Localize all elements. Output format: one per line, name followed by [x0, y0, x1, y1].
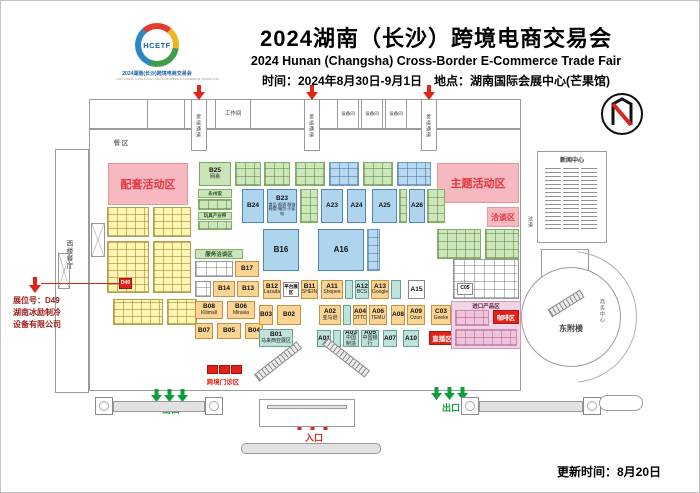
- platform-zone-label: 平台展区: [283, 282, 299, 297]
- booth-b01: B01马来西亚展区: [259, 329, 293, 347]
- update-time: 更新时间：8月20日: [557, 463, 661, 480]
- booth-a08: A08: [391, 305, 405, 325]
- floorplan-poster: HCETF 2024湖南(长沙)跨境电商交易会 2024 HUNAN (CHAN…: [0, 0, 700, 493]
- booth-b13: B13: [237, 281, 259, 297]
- yellow-booth-grid: [107, 207, 149, 237]
- booth-b24: B24: [242, 189, 264, 223]
- booth-c03: C03Geeke: [431, 305, 451, 325]
- booth-grid: [455, 329, 517, 346]
- booth-b25: B25网易: [199, 162, 231, 186]
- booth-a26: A26: [409, 189, 425, 223]
- booth-grid: [195, 281, 211, 297]
- booth-grid: [367, 229, 380, 271]
- zone-support-activities: 配套活动区: [108, 163, 188, 205]
- column-post: [583, 397, 601, 415]
- booth-b05: B05: [217, 323, 241, 339]
- freight-label-2: 货运通道: [308, 103, 315, 149]
- column-post: [205, 397, 223, 415]
- booth-b23: B23 食品·烟酒·服饰 鞋帽·箱包·小家电: [267, 189, 297, 223]
- booth-a05: A05中国银行: [361, 330, 379, 347]
- top-room: [147, 99, 185, 129]
- booth-cell: [345, 280, 353, 299]
- elevator-icon: [91, 223, 105, 257]
- business-center-label: 商务中心: [599, 289, 606, 333]
- booth-b08: B08Kilimall: [195, 301, 223, 319]
- seating-rows: [545, 167, 561, 229]
- east-annex-circle: [521, 267, 621, 367]
- freight-arrow-icon: [306, 85, 318, 100]
- booth-grid: [198, 221, 232, 230]
- booth-a03: A03中国制造: [343, 330, 359, 347]
- logo-text: HCETF: [141, 29, 173, 61]
- freight-label-1: 货运通道: [195, 103, 202, 149]
- east-annex-label: 东附楼: [545, 323, 597, 334]
- booth-grid: [264, 162, 290, 186]
- news-center-label: 新闻中心: [539, 155, 605, 164]
- corridor-bar: [113, 401, 205, 412]
- clinic-label: 跨境门诊区: [197, 376, 249, 386]
- booth-grid: [485, 229, 519, 259]
- callout-arrow-icon: [29, 277, 41, 293]
- booth-grid: [437, 229, 481, 259]
- booth-b02: B02: [277, 305, 301, 325]
- booth-a23: A23: [321, 189, 343, 223]
- equip-label-3: 设备间: [385, 111, 407, 117]
- seating-rows: [563, 167, 579, 229]
- booth-a04: A04OTTO: [353, 305, 367, 325]
- callout-company-2: 设备有限公司: [13, 321, 61, 329]
- freight-arrow-icon: [193, 85, 205, 100]
- booth-grid: [295, 162, 325, 186]
- zone-negotiation: 洽谈区: [487, 207, 519, 227]
- booth-a10: A10: [403, 330, 419, 347]
- booth-grid: [427, 189, 445, 223]
- callout-booth-no: 展位号：D49: [13, 297, 60, 305]
- workroom-label: 工作间: [215, 109, 251, 117]
- booth-b16: B16: [263, 229, 299, 271]
- equip-label-1: 设备间: [337, 111, 359, 117]
- booth-b07: B07: [195, 323, 213, 339]
- booth-b14: B14: [213, 281, 235, 297]
- booth-grid: [198, 199, 232, 210]
- page-title: 2024湖南（长沙）跨境电商交易会: [213, 21, 659, 53]
- callout-company-1: 湖南冰励制冷: [13, 309, 61, 317]
- booth-grid: [195, 261, 233, 277]
- booth-a11: A11Shopee: [321, 280, 343, 299]
- booth-grid: [300, 189, 318, 223]
- entrance-lobby: [259, 399, 355, 427]
- yellow-booth-grid: [167, 299, 197, 325]
- clinic-cell: [207, 365, 218, 374]
- booth-cell: [343, 305, 351, 325]
- clinic-cell: [219, 365, 230, 374]
- aisle-label: 过道: [527, 205, 534, 239]
- booth-b03: B03: [259, 305, 273, 325]
- booth-grid: [399, 189, 407, 223]
- column-post: [461, 397, 479, 415]
- booth-grid: [455, 310, 489, 326]
- booth-b06: B06Miravia: [227, 301, 255, 319]
- yongzhou-pavilion-strip: 永州馆: [198, 189, 232, 198]
- yellow-booth-grid: [113, 299, 163, 325]
- north-compass-icon: [599, 91, 645, 137]
- logo-caption-en: 2024 HUNAN (CHANGSHA) CROSS-BORDER E-COM…: [116, 77, 198, 80]
- booth-a24: A24: [347, 189, 366, 223]
- zone-service-negotiation: 服务洽谈区: [195, 249, 243, 259]
- ramp-hook: [599, 395, 643, 411]
- freight-arrow-icon: [423, 85, 435, 100]
- booth-a09: A09Ozon: [407, 305, 425, 325]
- booth-a07: A07: [383, 330, 397, 347]
- booth-a12: A12BCS: [355, 280, 369, 299]
- logo-ring-icon: HCETF: [135, 23, 179, 67]
- booth-b17: B17: [235, 261, 259, 277]
- event-info: 时间：2024年8月30日-9月1日 地点：湖南国际会展中心(芒果馆): [213, 72, 659, 89]
- column-post: [95, 397, 113, 415]
- freight-label-3: 货运通道: [425, 103, 432, 149]
- callout-leader-line: [41, 283, 119, 284]
- booth-grid: [397, 162, 431, 186]
- header-block: 2024湖南（长沙）跨境电商交易会 2024 Hunan (Changsha) …: [213, 21, 659, 89]
- booth-a16: A16: [318, 229, 364, 271]
- booth-a13: A13Google: [371, 280, 389, 299]
- zone-theme-activities: 主题活动区: [437, 163, 519, 203]
- booth-b12: B12Lazada: [263, 280, 281, 299]
- booth-a15: A15: [408, 280, 425, 299]
- corridor-bar: [479, 401, 583, 412]
- lobby-detail: [267, 405, 347, 409]
- entrance-canopy: [241, 443, 381, 454]
- logo-caption: 2024湖南(长沙)跨境电商交易会: [109, 70, 205, 77]
- dining-area-label: 餐 区: [99, 137, 143, 147]
- yellow-booth-grid: [153, 207, 191, 237]
- booth-grid: [235, 162, 261, 186]
- booth-cell: [391, 280, 401, 299]
- imported-products-label: 进口产品区: [453, 302, 519, 310]
- booth-a25: A25: [372, 189, 397, 223]
- booth-d49-highlight: D49: [119, 278, 132, 289]
- event-logo: HCETF 2024湖南(长沙)跨境电商交易会 2024 HUNAN (CHAN…: [109, 23, 205, 81]
- toy-belt-strip: 玩具产业带: [198, 212, 232, 220]
- clinic-cell: [231, 365, 242, 374]
- booth-c05: C05: [457, 283, 473, 295]
- zone-coffee: 咖啡区: [493, 310, 519, 324]
- booth-a06: A06TEMU: [369, 305, 387, 325]
- exit-arrow-icon: [431, 387, 442, 400]
- seating-rows: [581, 167, 597, 229]
- page-subtitle: 2024 Hunan (Changsha) Cross-Border E-Com…: [213, 54, 659, 68]
- booth-b11: B11SHEIN: [301, 280, 318, 299]
- booth-grid: [363, 162, 393, 186]
- exit-arrow-icon: [444, 387, 455, 400]
- booth-grid: [329, 162, 359, 186]
- equip-label-2: 设备间: [361, 111, 383, 117]
- yellow-booth-grid: [153, 241, 191, 293]
- booth-a02: A02亚马逊: [319, 305, 341, 325]
